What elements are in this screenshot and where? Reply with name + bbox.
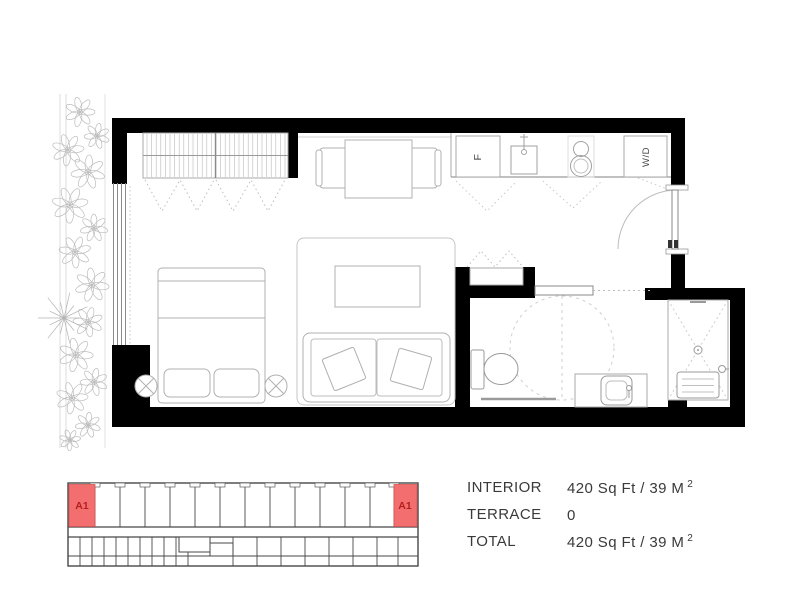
- plant-petal: [81, 217, 95, 230]
- linen-closet: [470, 268, 523, 285]
- wall-bottom: [112, 407, 745, 427]
- shower-bench: [677, 372, 719, 398]
- keyplan-core: [179, 537, 210, 552]
- plant-blade: [50, 318, 64, 325]
- plant-petal: [89, 283, 104, 301]
- keyplan-window-tick: [365, 483, 375, 487]
- wall-bath-left: [455, 267, 470, 427]
- shower-room: [668, 300, 729, 400]
- keyplan-unit-label-left: A1: [75, 500, 89, 512]
- plant-petal: [86, 159, 104, 174]
- plant-petal: [76, 320, 91, 335]
- wall-top: [112, 118, 685, 133]
- plant-petal: [65, 135, 79, 152]
- wall-shower-pier: [668, 400, 687, 427]
- entry-door: [618, 185, 688, 254]
- washer-dryer-label: W/D: [641, 147, 652, 167]
- plant-flower: [65, 97, 95, 128]
- wall-bath-closet-bottom: [470, 284, 535, 298]
- wall-entry-upper: [671, 122, 685, 188]
- plant-flower: [71, 155, 106, 190]
- plant-flower: [75, 268, 110, 303]
- plant-flower: [80, 368, 108, 396]
- stat-superscript: 2: [687, 479, 693, 490]
- dining-chair-left: [320, 148, 347, 188]
- stat-label: INTERIOR: [467, 479, 567, 496]
- dining-chair-right: [410, 148, 437, 188]
- linen-closet-doors: [467, 251, 523, 267]
- plant-petal: [73, 339, 89, 356]
- floorplan-page: F W/D A1 A1 INTERIOR 420 Sq Ft / 39 M2 T…: [0, 0, 800, 600]
- fridge-label: F: [472, 154, 484, 161]
- nightstand-left: [135, 375, 157, 397]
- stat-superscript: 2: [687, 533, 693, 544]
- keyplan-core: [210, 543, 233, 556]
- wall-closet-pier: [287, 133, 298, 178]
- dining-chair-right-back: [435, 150, 441, 186]
- wardrobe-closet: [143, 133, 288, 211]
- keyplan-window-tick: [215, 483, 225, 487]
- plant-petal: [64, 429, 72, 440]
- plant-blade: [64, 307, 87, 318]
- stat-row-interior: INTERIOR 420 Sq Ft / 39 M2: [467, 479, 693, 506]
- keyplan-window-tick: [240, 483, 250, 487]
- nightstand-right: [265, 375, 287, 397]
- wall-bath-closet-stub: [523, 267, 535, 284]
- stat-value: 420 Sq Ft / 39 M2: [567, 533, 693, 551]
- bathroom: [467, 251, 650, 407]
- plant-petal: [85, 227, 96, 242]
- plant-petal: [72, 236, 84, 253]
- key-plan: A1 A1: [68, 483, 418, 566]
- shower-drain: [694, 346, 702, 354]
- plant-blade: [64, 318, 87, 329]
- plant-petal: [87, 319, 103, 332]
- plant-petal: [93, 379, 108, 390]
- closet-bifold-doors: [216, 180, 285, 211]
- pillow: [164, 369, 210, 397]
- plant-petal: [67, 187, 82, 206]
- stat-label: TERRACE: [467, 506, 567, 523]
- keyplan-window-tick: [165, 483, 175, 487]
- plant-flower: [59, 236, 92, 268]
- sofa: [303, 333, 450, 402]
- dining-table: [345, 140, 412, 198]
- plant-flower: [59, 429, 81, 451]
- keyplan-window-tick: [265, 483, 275, 487]
- plant-petal: [56, 395, 73, 409]
- plant-flower: [59, 337, 93, 372]
- plant-flower: [80, 214, 108, 242]
- plant-petal: [73, 158, 90, 175]
- dining-chair-left-back: [316, 150, 322, 186]
- plant-petal: [65, 103, 81, 115]
- pillow: [214, 369, 259, 397]
- plant-flower: [75, 412, 101, 438]
- plant-flower: [56, 382, 88, 415]
- dining-set: [298, 137, 452, 198]
- stat-row-total: TOTAL 420 Sq Ft / 39 M2: [467, 533, 693, 560]
- closet-bifold-doors: [145, 180, 214, 211]
- plant-blade: [50, 311, 64, 318]
- keyplan-window-tick: [140, 483, 150, 487]
- keyplan-window-tick: [190, 483, 200, 487]
- plant-flower: [51, 187, 88, 224]
- plant-petal: [56, 389, 73, 401]
- bed-area: [135, 268, 287, 403]
- plant-petal: [68, 202, 87, 219]
- keyplan-window-tick: [340, 483, 350, 487]
- kitchen: [451, 133, 671, 211]
- wall-right: [730, 288, 745, 427]
- plant-flower: [84, 123, 110, 149]
- cabinet-swing: [456, 181, 517, 211]
- coffee-table: [335, 266, 420, 307]
- keyplan-window-tick: [115, 483, 125, 487]
- plant-petal: [92, 227, 103, 242]
- area-stats: INTERIOR 420 Sq Ft / 39 M2 TERRACE 0 TOT…: [467, 479, 693, 560]
- living-area: [297, 238, 455, 405]
- plant-petal: [96, 127, 110, 138]
- plant-petal: [83, 284, 95, 302]
- plant-petal: [79, 424, 90, 438]
- kitchen-sink: [511, 146, 537, 174]
- vanity: [575, 374, 647, 407]
- plant-petal: [77, 414, 90, 427]
- stat-value: 420 Sq Ft / 39 M2: [567, 479, 693, 497]
- keyplan-window-tick: [290, 483, 300, 487]
- stat-row-terrace: TERRACE 0: [467, 506, 693, 533]
- plant-petal: [93, 373, 108, 384]
- stove: [568, 136, 594, 177]
- plant-petal: [59, 352, 77, 366]
- plant-petal: [78, 98, 92, 113]
- window-left: [114, 183, 131, 345]
- pocket-door: [535, 286, 593, 295]
- stat-label: TOTAL: [467, 533, 567, 550]
- keyplan-window-tick: [315, 483, 325, 487]
- keyplan-unit-label-right: A1: [398, 500, 412, 512]
- landscaping-plants: [38, 94, 110, 451]
- wall-entry-lower: [671, 250, 685, 290]
- wall-left-upper: [112, 118, 127, 184]
- plant-flower: [52, 134, 85, 167]
- stat-value: 0: [567, 506, 579, 524]
- cabinet-swing: [543, 181, 602, 208]
- toilet: [471, 350, 518, 389]
